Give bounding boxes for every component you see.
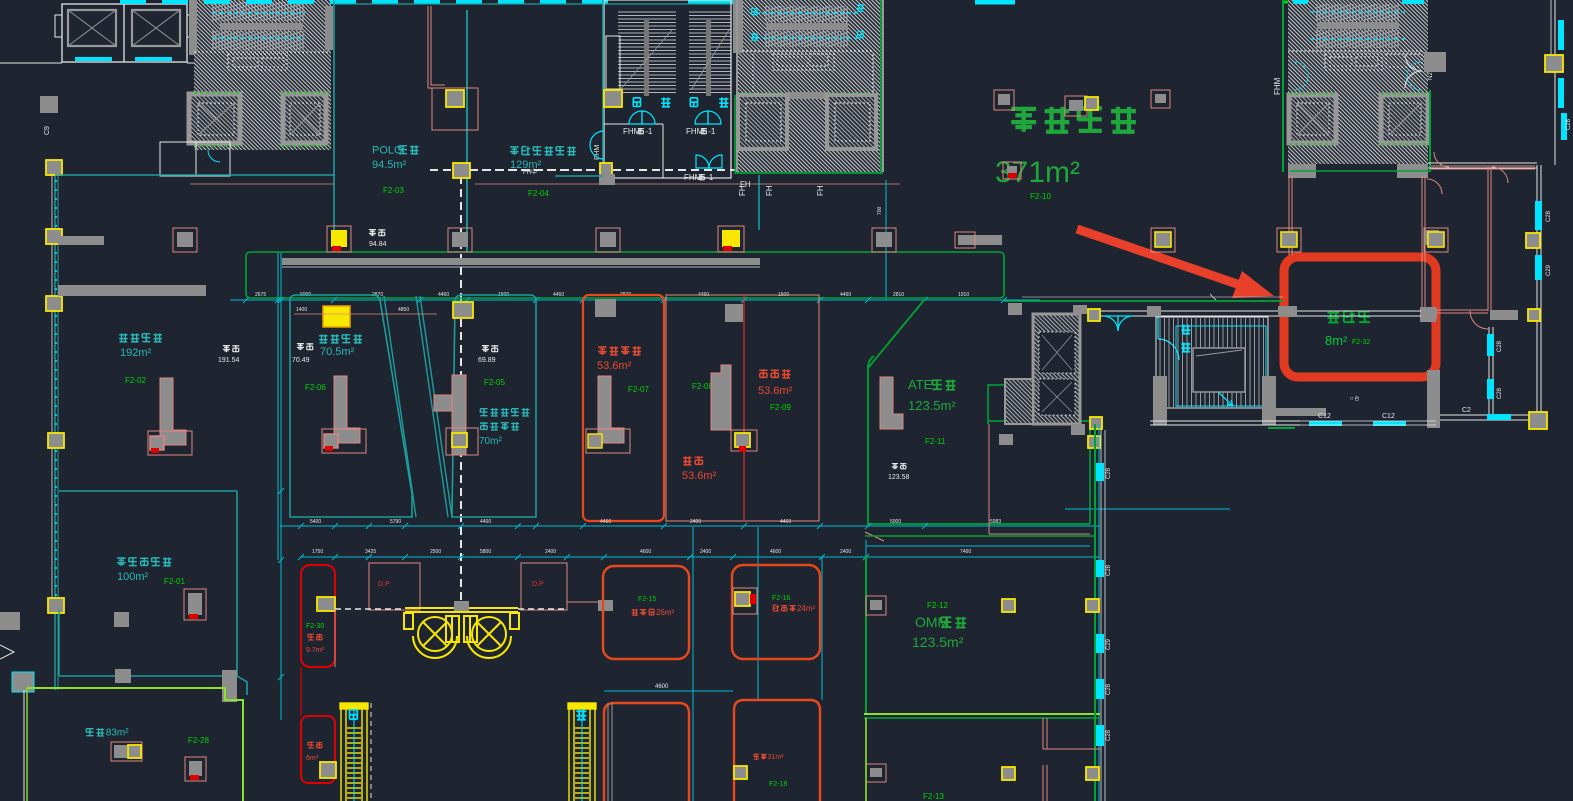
svg-text:F2-02: F2-02 — [125, 376, 146, 385]
svg-text:-1: -1 — [708, 127, 716, 136]
svg-text:F2-05: F2-05 — [484, 378, 505, 387]
svg-text:4460: 4460 — [480, 519, 491, 525]
svg-text:4850: 4850 — [398, 307, 409, 313]
svg-text:5790: 5790 — [390, 519, 401, 525]
svg-text:5983: 5983 — [990, 519, 1001, 525]
svg-text:F2-16: F2-16 — [772, 595, 790, 602]
svg-text:FH: FH — [738, 185, 747, 196]
svg-text:191.54: 191.54 — [218, 357, 240, 364]
svg-text:C9: C9 — [44, 126, 51, 135]
svg-text:100m²: 100m² — [117, 571, 149, 583]
svg-text:D.P: D.P — [378, 581, 390, 588]
svg-text:69.89: 69.89 — [478, 357, 496, 364]
svg-text:3425: 3425 — [365, 549, 376, 555]
svg-text:2810: 2810 — [893, 292, 904, 298]
svg-text:192m²: 192m² — [120, 347, 152, 359]
svg-text:F2-06: F2-06 — [305, 383, 326, 392]
svg-text:700: 700 — [877, 206, 883, 215]
svg-text:5000: 5000 — [890, 519, 901, 525]
svg-text:6m²: 6m² — [306, 755, 319, 762]
svg-text:C28: C28 — [1106, 683, 1112, 695]
svg-text:F2-04: F2-04 — [528, 189, 549, 198]
svg-text:9.7m²: 9.7m² — [306, 647, 325, 654]
svg-text:C12: C12 — [1382, 413, 1395, 420]
svg-text:53.6m²: 53.6m² — [597, 360, 632, 372]
svg-text:FH: FH — [765, 185, 774, 196]
svg-text:1400: 1400 — [296, 307, 307, 313]
svg-text:C28: C28 — [1566, 118, 1572, 130]
svg-text:31m²: 31m² — [768, 754, 785, 761]
svg-text:4460: 4460 — [438, 292, 449, 298]
svg-text:2400: 2400 — [690, 519, 701, 525]
svg-text:70.5m²: 70.5m² — [320, 346, 355, 358]
svg-text:C28: C28 — [1106, 467, 1112, 479]
svg-text:26m²: 26m² — [656, 608, 675, 617]
svg-text:C28: C28 — [1546, 210, 1552, 222]
svg-text:FHM: FHM — [1273, 77, 1282, 95]
svg-text:53.6m²: 53.6m² — [758, 385, 793, 397]
svg-text:F2-18: F2-18 — [769, 781, 787, 788]
svg-text:C29: C29 — [1546, 264, 1552, 276]
svg-text:C28: C28 — [1106, 564, 1112, 576]
svg-text:□ 台: □ 台 — [1350, 395, 1359, 402]
svg-text:70m²: 70m² — [479, 436, 502, 447]
svg-text:24m²: 24m² — [797, 604, 816, 613]
svg-text:F2-09: F2-09 — [770, 403, 791, 412]
svg-text:FH中: FH中 — [523, 168, 537, 176]
svg-text:F2-10: F2-10 — [1030, 192, 1051, 201]
svg-text:7460: 7460 — [960, 549, 971, 555]
svg-text:2400: 2400 — [840, 549, 851, 555]
svg-text:5400: 5400 — [310, 519, 321, 525]
svg-text:1750: 1750 — [312, 549, 323, 555]
svg-text:C2: C2 — [1462, 407, 1471, 414]
svg-text:4600: 4600 — [770, 549, 781, 555]
svg-text:FH: FH — [816, 185, 825, 196]
svg-text:F2-32: F2-32 — [1352, 339, 1370, 346]
svg-text:70.49: 70.49 — [292, 357, 310, 364]
svg-text:4460: 4460 — [780, 519, 791, 525]
svg-text:83m²: 83m² — [106, 728, 129, 739]
svg-text:C28: C28 — [1497, 387, 1503, 399]
svg-text:F2-01: F2-01 — [164, 577, 185, 586]
svg-text:2675: 2675 — [255, 292, 266, 298]
svg-text:2400: 2400 — [700, 549, 711, 555]
svg-text:F2-28: F2-28 — [188, 736, 209, 745]
svg-text:123.58: 123.58 — [888, 474, 910, 481]
svg-text:F2-13: F2-13 — [923, 792, 944, 801]
svg-text:4460: 4460 — [840, 292, 851, 298]
svg-text:C29: C29 — [1106, 638, 1112, 650]
svg-text:-1: -1 — [706, 173, 714, 182]
svg-text:4460: 4460 — [553, 292, 564, 298]
svg-text:94.5m²: 94.5m² — [372, 159, 407, 171]
svg-text:F2-03: F2-03 — [383, 186, 404, 195]
svg-text:123.5m²: 123.5m² — [912, 634, 964, 650]
svg-text:8m²: 8m² — [1325, 333, 1348, 348]
svg-text:F2-30: F2-30 — [306, 623, 324, 630]
svg-text:2500: 2500 — [430, 549, 441, 555]
svg-text:123.5m²: 123.5m² — [908, 398, 956, 413]
svg-text:D.P: D.P — [532, 581, 544, 588]
svg-text:F2-07: F2-07 — [628, 385, 649, 394]
svg-text:F2-08: F2-08 — [692, 382, 713, 391]
svg-text:5800: 5800 — [480, 549, 491, 555]
svg-text:C28: C28 — [1106, 729, 1112, 741]
svg-text:53.6m²: 53.6m² — [682, 470, 717, 482]
svg-text:C12: C12 — [1318, 413, 1331, 420]
svg-text:94.84: 94.84 — [369, 241, 387, 248]
svg-text:F2-11: F2-11 — [925, 437, 946, 446]
svg-text:4460: 4460 — [600, 519, 611, 525]
svg-text:4600: 4600 — [640, 549, 651, 555]
svg-text:2400: 2400 — [545, 549, 556, 555]
svg-text:4600: 4600 — [655, 684, 669, 690]
svg-text:-1: -1 — [645, 127, 653, 136]
svg-text:F2-12: F2-12 — [927, 601, 948, 610]
svg-text:1910: 1910 — [958, 292, 969, 298]
svg-text:N2: N2 — [1428, 72, 1434, 80]
svg-text:F2-15: F2-15 — [638, 596, 656, 603]
svg-text:C28: C28 — [1497, 340, 1503, 352]
svg-text:ATE: ATE — [908, 377, 933, 392]
